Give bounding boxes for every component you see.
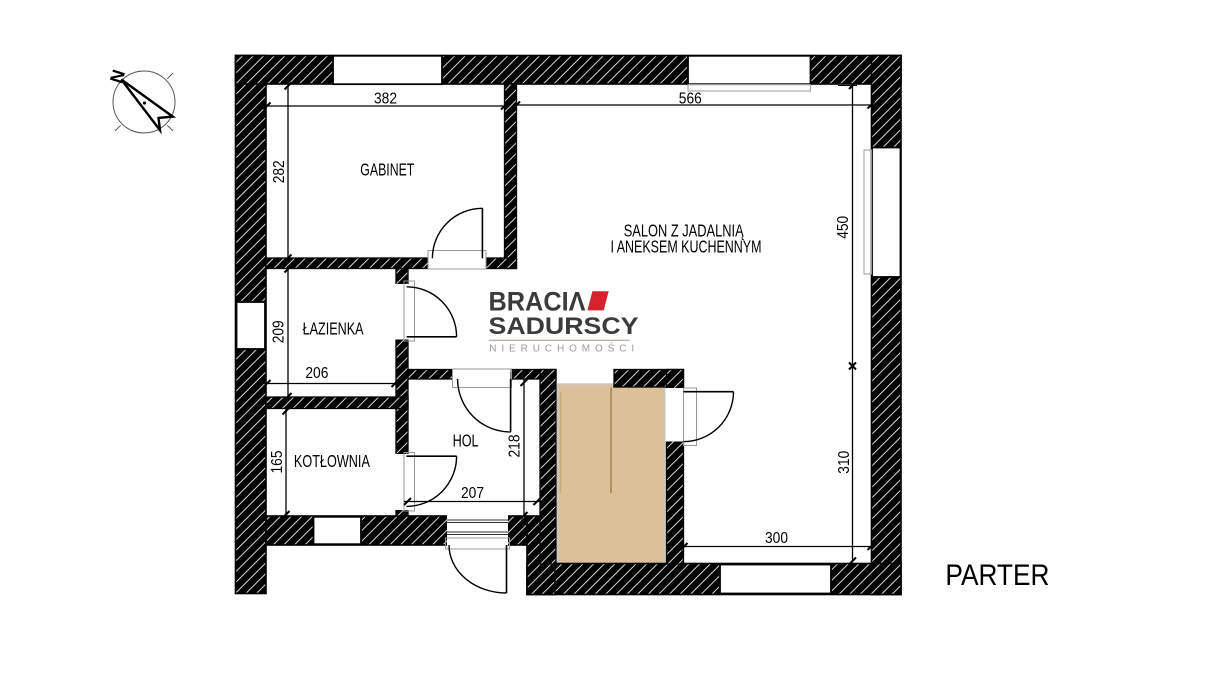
svg-text:GABINET: GABINET xyxy=(360,160,414,180)
svg-text:I ANEKSEM KUCHENNYM: I ANEKSEM KUCHENNYM xyxy=(611,236,762,256)
svg-text:ŁAZIENKA: ŁAZIENKA xyxy=(303,319,364,339)
svg-text:218: 218 xyxy=(507,434,524,457)
svg-text:KOTŁOWNIA: KOTŁOWNIA xyxy=(294,451,370,471)
svg-text:209: 209 xyxy=(271,320,288,343)
svg-text:450: 450 xyxy=(835,216,852,239)
svg-text:PARTER: PARTER xyxy=(945,559,1049,592)
svg-text:566: 566 xyxy=(679,91,702,108)
svg-text:300: 300 xyxy=(765,530,788,547)
svg-text:SADURSCY: SADURSCY xyxy=(489,313,639,340)
svg-text:206: 206 xyxy=(305,365,328,382)
svg-text:165: 165 xyxy=(269,450,286,473)
svg-text:HOL: HOL xyxy=(453,431,479,451)
svg-text:207: 207 xyxy=(461,485,484,502)
svg-text:382: 382 xyxy=(374,91,397,108)
svg-text:NIERUCHOMOŚCI: NIERUCHOMOŚCI xyxy=(489,342,634,355)
svg-text:282: 282 xyxy=(271,160,288,183)
svg-text:310: 310 xyxy=(836,451,853,474)
svg-text:BRACIΛ: BRACIΛ xyxy=(489,286,586,316)
